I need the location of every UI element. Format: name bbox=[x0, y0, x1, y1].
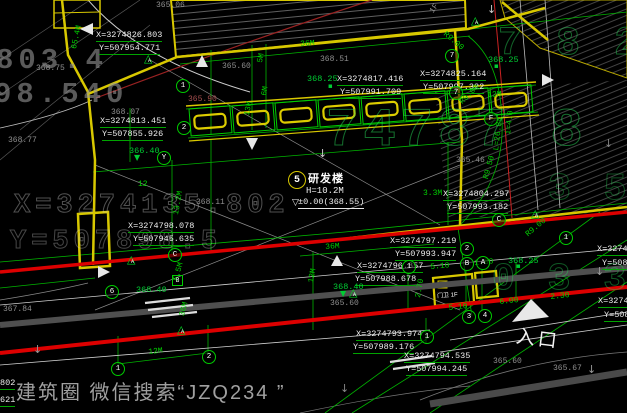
elevg-label: 368.25 bbox=[307, 74, 338, 84]
coord-label: Y=507945.635 bbox=[133, 234, 194, 246]
survey-triangle-marker: △A bbox=[127, 255, 141, 267]
marker-label: ▼ bbox=[340, 290, 346, 298]
grid-bubble: 7 bbox=[445, 49, 459, 63]
survey-triangle-marker: △A bbox=[531, 209, 545, 221]
grid-bubble: F bbox=[484, 112, 498, 126]
triangle-letter: A bbox=[148, 58, 151, 64]
grid-bubble: A bbox=[476, 256, 490, 270]
underlay-label: X=3274135.802 bbox=[14, 192, 290, 220]
coord-label: Y=507855.926 bbox=[102, 129, 163, 141]
triangle-letter: A bbox=[181, 329, 184, 335]
elevgray-label: 367.84 bbox=[3, 305, 32, 314]
coord-label: X=3274793.974 bbox=[356, 329, 422, 341]
building-height: H=10.2M bbox=[306, 186, 344, 196]
arrow-down-1 bbox=[246, 138, 258, 150]
marker-label: ↓ bbox=[487, 4, 496, 16]
dim-label: 5.10 bbox=[430, 261, 450, 272]
elevg-label: 368.40 bbox=[136, 285, 167, 295]
elevg-label: 368.25 bbox=[488, 55, 519, 65]
dim-label: 36M bbox=[300, 39, 315, 49]
marker-label: ↓ bbox=[604, 138, 613, 150]
elevgray-label: 365.06 bbox=[156, 1, 185, 10]
guard-house-label: 门卫 1F bbox=[437, 289, 458, 299]
elevgray-label: 365.60 bbox=[222, 62, 251, 71]
grid-bubble: C bbox=[492, 213, 506, 227]
survey-triangle-marker: △A bbox=[144, 54, 158, 66]
coord-label: X=3274797.219 bbox=[390, 236, 456, 248]
coord-label: 621 bbox=[0, 395, 15, 407]
coord-label: X=32747 bbox=[598, 296, 627, 308]
elevgray-label: 368.51 bbox=[320, 55, 349, 64]
dim-label: 5M bbox=[256, 53, 267, 64]
dim-label: 6M bbox=[260, 86, 271, 97]
building-number-bubble: 5 bbox=[288, 171, 306, 189]
coord-label: Y=5088 bbox=[604, 310, 627, 322]
coord-label: Y=507991.709 bbox=[340, 87, 401, 99]
marker-label: ↓ bbox=[595, 266, 604, 278]
survey-triangle-marker: △A bbox=[471, 16, 485, 28]
underlay-label: 74787 8 bbox=[326, 104, 588, 161]
triangle-letter: A bbox=[353, 292, 356, 298]
elevgray-label: 365.60 bbox=[493, 357, 522, 366]
triangle-letter: A bbox=[131, 259, 134, 265]
grid-bubble: 4 bbox=[478, 309, 492, 323]
grid-bubble: 2 bbox=[202, 350, 216, 364]
coord-label: X=3274825.164 bbox=[420, 69, 486, 81]
watermark-text: 建筑圈 微信搜索“JZQ234 ” bbox=[16, 376, 286, 405]
survey-triangle-marker: △A bbox=[177, 325, 191, 337]
elevgray-label: 368.77 bbox=[8, 136, 37, 145]
arrow-east-2 bbox=[542, 74, 554, 86]
grid-bubble: 1 bbox=[176, 79, 190, 93]
grid-bubble: 1 bbox=[111, 362, 125, 376]
grid-bubble: 1 bbox=[402, 260, 416, 274]
triangle-letter: A bbox=[475, 20, 478, 26]
building-name: 研发楼 bbox=[308, 170, 344, 186]
survey-triangle-marker: △A bbox=[349, 288, 363, 300]
grid-bubble: C bbox=[168, 248, 182, 262]
grid-bubble: B bbox=[460, 257, 474, 271]
entrance-label: 入口 bbox=[515, 321, 562, 353]
coord-label: Y=507993.947 bbox=[395, 249, 456, 261]
building-level: ±0.00(368.55) bbox=[298, 197, 364, 209]
grid-bubble: 7 bbox=[449, 86, 463, 100]
marker-label: ▽ bbox=[292, 199, 299, 208]
arrow-up-2 bbox=[331, 255, 343, 266]
elevgray-label: 368.11 bbox=[196, 198, 225, 207]
elevgray-label: 365.90 bbox=[188, 95, 217, 104]
arrow-east-1 bbox=[98, 266, 110, 278]
marker-label: ↓ bbox=[318, 148, 327, 160]
coord-label: Y=507994.245 bbox=[406, 364, 467, 376]
road-band-2 bbox=[430, 372, 627, 404]
top-building bbox=[171, 0, 466, 57]
survey-square-marker: B bbox=[172, 275, 183, 286]
elevgray-label: 368.07 bbox=[111, 108, 140, 117]
marker-label: ▪ bbox=[328, 83, 333, 90]
dim-label: 12 bbox=[138, 180, 148, 189]
coord-label: X=3274798.078 bbox=[128, 221, 194, 233]
marker-label: ▪ bbox=[516, 263, 521, 270]
underlay-label: 3 5 8 bbox=[548, 170, 627, 210]
coord-label: X=32747 bbox=[597, 244, 627, 256]
grid-bubble: 3 bbox=[462, 310, 476, 324]
grid-bubble: 2 bbox=[460, 242, 474, 256]
grid-bubble: 1 bbox=[420, 330, 434, 344]
coord-label: X=3274826.803 bbox=[96, 30, 162, 42]
marker-label: ↓ bbox=[587, 364, 596, 376]
coord-label: 802 bbox=[0, 378, 15, 390]
grid-bubble: 2 bbox=[177, 121, 191, 135]
coord-label: X=3274794.535 bbox=[404, 351, 470, 363]
marker-label: ↓ bbox=[33, 344, 42, 356]
marker-label: ▪ bbox=[494, 63, 499, 70]
grid-bubble: 1 bbox=[559, 231, 573, 245]
coord-label: X=3274804.297 bbox=[443, 189, 509, 201]
coord-label: X=3274813.451 bbox=[100, 116, 166, 128]
dim-label: 3.3M bbox=[423, 189, 442, 198]
coord-label: Y=507988.678 bbox=[355, 274, 416, 286]
elevgray-label: 365.46 bbox=[456, 156, 485, 165]
grid-bubble: Y bbox=[157, 151, 171, 165]
elevgray-label: 365.60 bbox=[330, 299, 359, 308]
grid-bubble: 6 bbox=[105, 285, 119, 299]
site-plan-drawing: 5 研发楼 H=10.2M ±0.00(368.55) 门卫 1F 入口 建筑圈… bbox=[0, 0, 627, 413]
dim-label: 12M bbox=[148, 346, 163, 356]
dim-label: 36M bbox=[325, 242, 340, 252]
elevgray-label: 368.75 bbox=[36, 64, 65, 73]
marker-label: ↓ bbox=[340, 383, 349, 395]
coord-label: X=3274817.416 bbox=[337, 74, 403, 86]
dim-label: 12M bbox=[487, 90, 502, 100]
elevgray-label: 365.67 bbox=[553, 364, 582, 373]
coord-label: Y=5088 bbox=[602, 258, 627, 270]
marker-label: ▼ bbox=[134, 154, 140, 162]
elevg-label: 368.25 bbox=[508, 256, 539, 266]
underlay-label: 98.540 bbox=[0, 80, 128, 110]
triangle-letter: A bbox=[535, 213, 538, 219]
